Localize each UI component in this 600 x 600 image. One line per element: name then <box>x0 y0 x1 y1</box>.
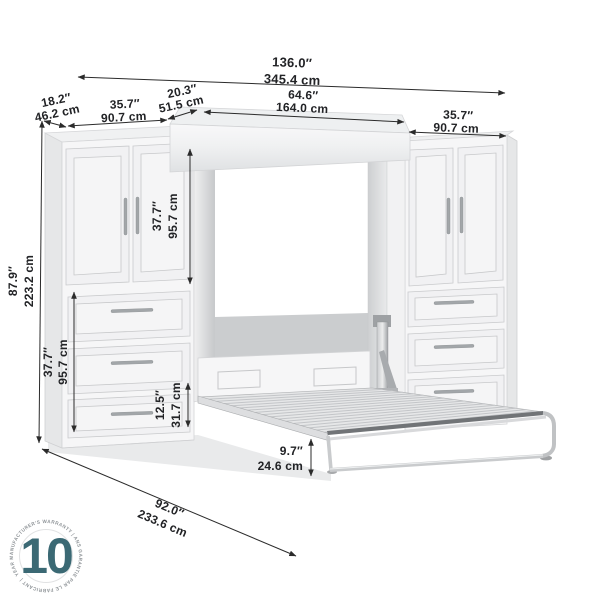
bed-foot-bar <box>330 456 543 470</box>
warranty-badge-number: 10 <box>20 528 72 584</box>
dim-overall-height-cm: 223.2 cm <box>22 255 36 307</box>
dim-left-width-cm: 90.7 cm <box>101 109 147 125</box>
dim-drawer-height-cm: 95.7 cm <box>56 339 70 384</box>
bed-leg-left <box>328 436 331 470</box>
right-door-handle-icon <box>460 197 463 233</box>
dim-overall-height-in: 87.9″ <box>6 266 20 296</box>
dim-bottom-drawer-cm: 31.7 cm <box>169 382 183 427</box>
dim-overall-height: 87.9″ 223.2 cm <box>6 121 42 443</box>
dim-door-height-in: 37.7″ <box>150 201 164 231</box>
right-cabinet <box>405 131 517 430</box>
dim-drawer-height-in: 37.7″ <box>41 347 55 377</box>
right-door-left-panel <box>416 155 446 277</box>
dim-overall-width-cm: 345.4 cm <box>264 71 321 88</box>
warranty-badge: YEAR MANUFACTURER'S WARRANTY | ANS GARAN… <box>0 504 98 600</box>
dim-door-height-cm: 95.7 cm <box>166 193 180 238</box>
dim-right-width-cm: 90.7 cm <box>433 120 479 136</box>
right-door-right-panel <box>465 153 496 274</box>
right-door-handle-icon <box>447 198 450 234</box>
right-cabinet-side <box>507 135 517 418</box>
dim-left-width: 35.7″ 90.7 cm <box>68 96 167 126</box>
left-cabinet-side <box>45 133 62 448</box>
dim-left-depth-cm: 46.2 cm <box>33 102 80 125</box>
dim-bed-frame-height-in: 9.7″ <box>280 444 303 458</box>
dim-bed-width-cm: 164.0 cm <box>276 100 329 116</box>
cavity-interior <box>215 161 368 317</box>
dim-bed-frame-height-cm: 24.6 cm <box>258 459 303 473</box>
dim-bottom-drawer-in: 12.5″ <box>153 390 167 420</box>
bed-leg-right <box>542 413 554 456</box>
left-door-left-panel <box>74 156 121 275</box>
left-door-handle-icon <box>124 198 127 235</box>
dim-overall-width-in: 136.0″ <box>272 54 312 70</box>
dim-left-depth: 18.2″ 46.2 cm <box>33 90 80 127</box>
dim-right-width: 35.7″ 90.7 cm <box>409 107 506 136</box>
dimension-diagram: 136.0″ 345.4 cm 18.2″ 46.2 cm 35.7″ 90.7… <box>0 0 600 600</box>
left-door-handle-icon <box>136 197 139 234</box>
